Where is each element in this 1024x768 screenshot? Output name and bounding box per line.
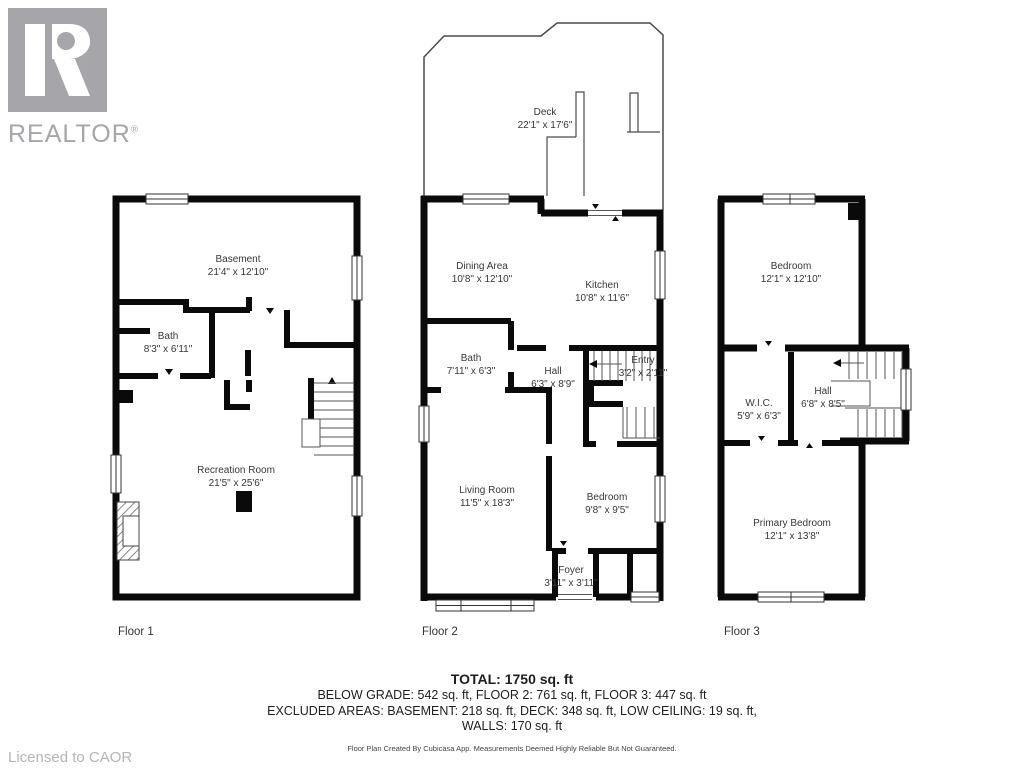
room-label-bedroom-f2: Bedroom9'8" x 9'5" <box>585 491 629 517</box>
room-label-living-room: Living Room11'5" x 18'3" <box>459 484 515 510</box>
licensed-to: Licensed to CAOR <box>8 749 132 766</box>
room-label-deck: Deck22'1" x 17'6" <box>518 106 573 132</box>
room-label-bedroom-f3: Bedroom12'1" x 12'10" <box>761 260 821 286</box>
floor2-caption: Floor 2 <box>422 626 458 638</box>
room-label-recreation-room: Recreation Room21'5" x 25'6" <box>197 464 275 490</box>
realtor-wordmark: REALTOR® <box>8 120 128 149</box>
floorplan-page: REALTOR® Basement21'4" x 12'10" Bath8'3"… <box>0 0 1024 768</box>
room-label-bath-f1: Bath8'3" x 6'11" <box>144 330 193 356</box>
room-label-primary-bedroom: Primary Bedroom12'1" x 13'8" <box>753 517 831 543</box>
registered-mark: ® <box>131 125 139 136</box>
total-area: TOTAL: 1750 sq. ft <box>0 671 1024 688</box>
room-label-hall-f2: Hall6'3" x 8'9" <box>531 365 575 391</box>
room-label-foyer: Foyer3'11" x 3'11" <box>544 564 597 590</box>
realtor-logo: REALTOR® <box>8 8 128 149</box>
room-label-entry: Entry3'2" x 2'11" <box>619 354 668 380</box>
room-label-basement: Basement21'4" x 12'10" <box>208 253 268 279</box>
realtor-r-mark <box>8 8 107 112</box>
area-summary: TOTAL: 1750 sq. ft BELOW GRADE: 542 sq. … <box>0 671 1024 753</box>
room-label-dining-area: Dining Area10'8" x 12'10" <box>452 260 512 286</box>
walls-area: WALLS: 170 sq. ft <box>0 719 1024 735</box>
floor3-caption: Floor 3 <box>724 626 760 638</box>
room-label-bath-f2: Bath7'11" x 6'3" <box>447 352 496 378</box>
room-label-kitchen: Kitchen10'8" x 11'6" <box>575 279 629 305</box>
fireplace <box>117 502 139 560</box>
excluded-areas: EXCLUDED AREAS: BASEMENT: 218 sq. ft, DE… <box>0 704 1024 720</box>
disclaimer: Floor Plan Created By Cubicasa App. Meas… <box>0 744 1024 753</box>
room-label-hall-f3: Hall6'8" x 8'5" <box>801 385 845 411</box>
floorplan-drawing <box>0 0 1024 768</box>
room-label-wic: W.I.C.5'9" x 6'3" <box>737 397 781 423</box>
floor1-caption: Floor 1 <box>118 626 154 638</box>
area-by-floor: BELOW GRADE: 542 sq. ft, FLOOR 2: 761 sq… <box>0 688 1024 704</box>
